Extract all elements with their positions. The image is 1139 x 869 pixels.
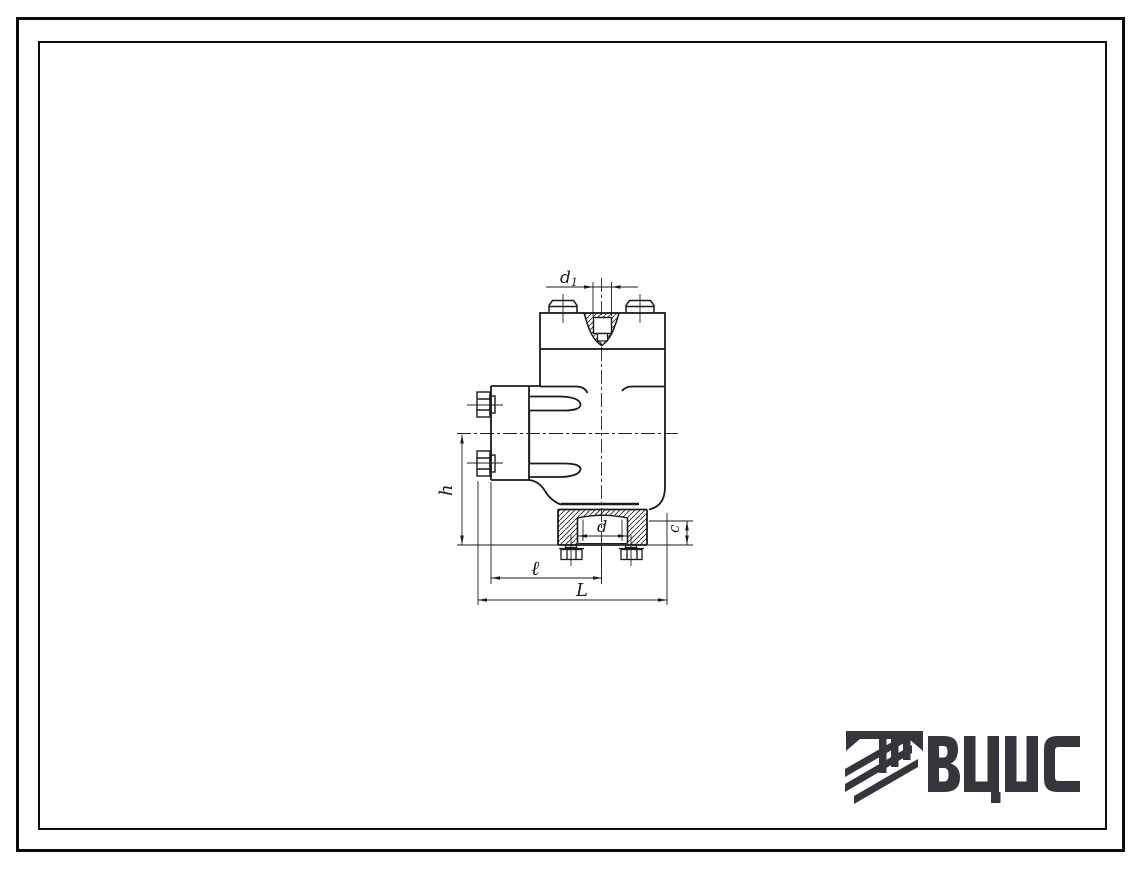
letter-ve: [928, 736, 960, 792]
vcis-logo-text: ВЦИС: [0, 0, 1, 1]
label-d: d: [597, 517, 607, 536]
label-h: h: [436, 484, 457, 496]
label-L: L: [575, 580, 588, 601]
dimension-labels: d1 h ℓ L c d: [436, 268, 683, 601]
vcis-logo-letters: [928, 736, 1080, 803]
label-d1: d1: [560, 268, 578, 289]
dimension-lines: [457, 282, 693, 605]
letter-es: [1044, 736, 1080, 792]
valve-section-drawing: d1 h ℓ L c d: [430, 250, 720, 620]
scanned-sheet: d1 h ℓ L c d: [0, 0, 1139, 869]
letter-tse-tail: [991, 792, 1001, 803]
vcis-logo-emblem: [845, 731, 923, 804]
vcis-logo: [835, 718, 1095, 823]
label-l: ℓ: [531, 556, 540, 580]
letter-tse: [964, 736, 999, 792]
dimension-arrows: [460, 285, 689, 602]
body-outline: [491, 313, 665, 545]
label-c: c: [665, 524, 683, 533]
letter-i: [1005, 736, 1038, 792]
